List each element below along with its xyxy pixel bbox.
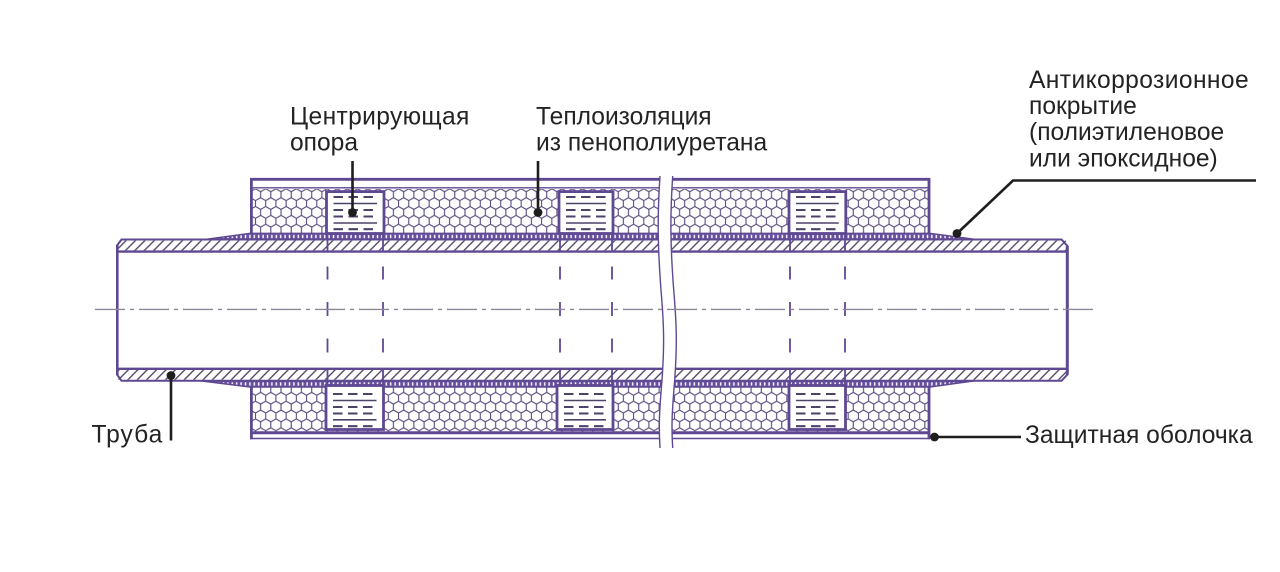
svg-text:покрытие: покрытие	[1029, 93, 1137, 120]
svg-text:опора: опора	[290, 130, 358, 157]
svg-text:(полиэтиленовое: (полиэтиленовое	[1029, 119, 1224, 146]
svg-text:Центрирующая: Центрирующая	[290, 103, 470, 130]
svg-text:Труба: Труба	[92, 422, 164, 449]
svg-text:Теплоизоляция: Теплоизоляция	[536, 103, 712, 130]
svg-text:Защитная оболочка: Защитная оболочка	[1025, 422, 1253, 449]
svg-text:Антикоррозионное: Антикоррозионное	[1029, 67, 1249, 94]
svg-text:из пенополиуретана: из пенополиуретана	[536, 130, 767, 157]
svg-text:или эпоксидное): или эпоксидное)	[1029, 145, 1218, 172]
